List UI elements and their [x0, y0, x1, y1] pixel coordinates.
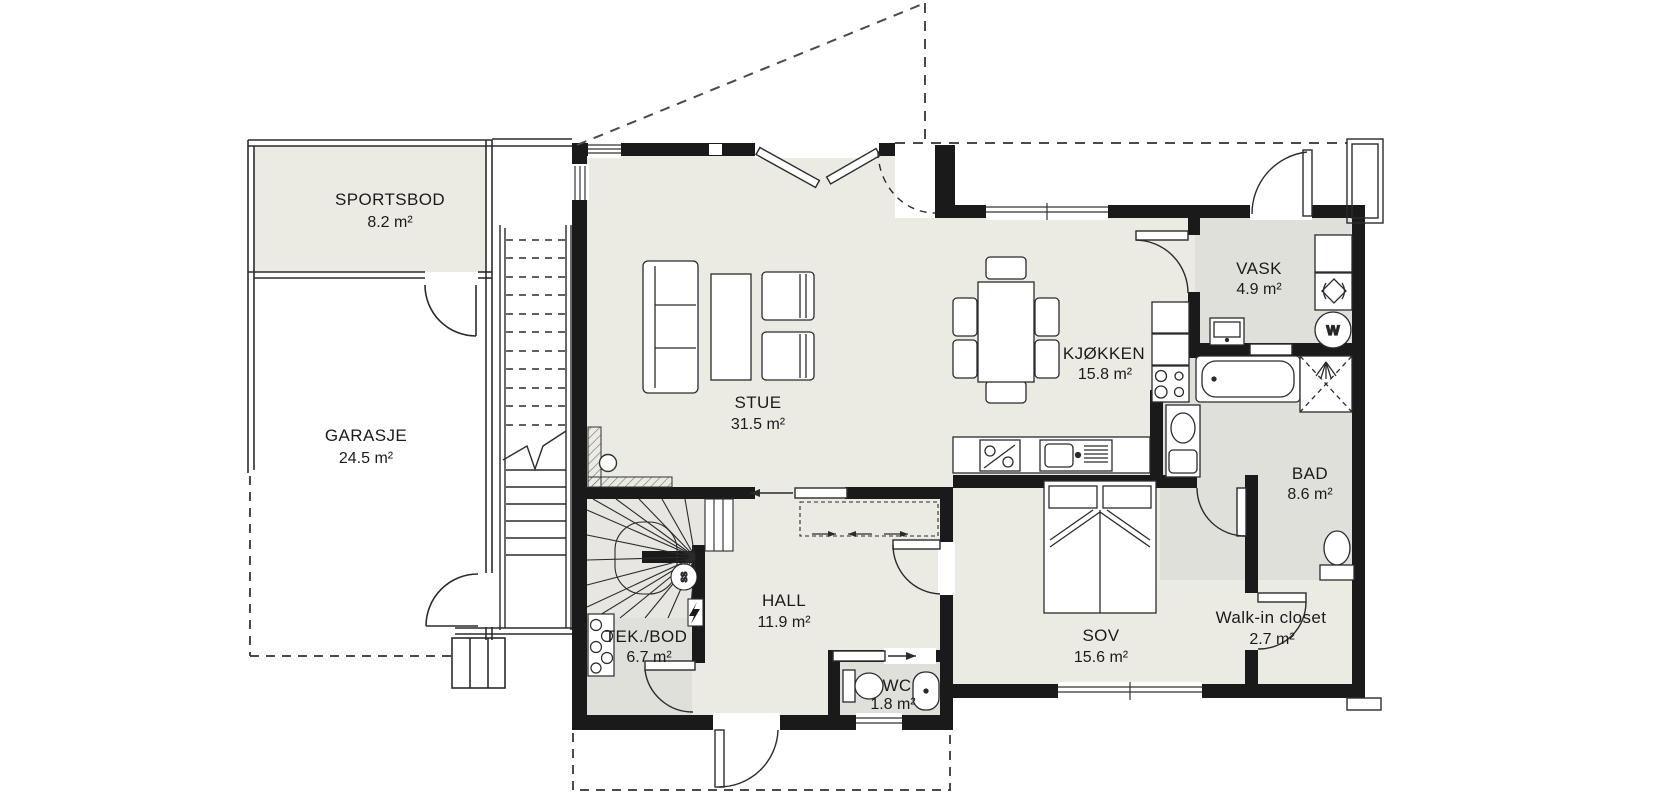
vask-bad-sliding-door	[1250, 344, 1292, 355]
armchair-icon	[762, 272, 814, 320]
kitchen-sink-icon	[1040, 440, 1112, 471]
svg-text:VASK: VASK	[1236, 259, 1282, 278]
svg-text:Walk-in closet: Walk-in closet	[1216, 608, 1327, 627]
counter-icon	[1315, 235, 1352, 272]
svg-text:2.7 m²: 2.7 m²	[1249, 631, 1295, 648]
tall-cabinets-icon	[1152, 302, 1189, 365]
svg-text:BAD: BAD	[1292, 464, 1328, 483]
garage-side-door	[426, 574, 478, 626]
svg-text:15.8 m²: 15.8 m²	[1078, 366, 1133, 383]
bathtub-icon	[1196, 356, 1300, 402]
double-bed-icon	[1044, 481, 1156, 613]
svg-text:KJØKKEN: KJØKKEN	[1063, 344, 1145, 363]
stair-break-line	[503, 431, 566, 469]
chair-icon	[986, 257, 1026, 279]
floor-plan-drawing: SS	[0, 0, 1670, 800]
svg-text:HALL: HALL	[762, 591, 806, 610]
svg-text:8.6 m²: 8.6 m²	[1287, 486, 1333, 503]
corner-step	[1347, 698, 1381, 710]
svg-text:SOV: SOV	[1082, 626, 1119, 645]
chair-icon	[1035, 298, 1059, 336]
outdoor-stair	[500, 225, 571, 630]
chair-icon	[1035, 340, 1059, 378]
svg-text:SPORTSBOD: SPORTSBOD	[335, 190, 445, 209]
armchair-icon	[762, 332, 814, 380]
cooktop-icon	[1152, 366, 1189, 402]
electrical-panel-icon	[688, 599, 703, 626]
chair-icon	[953, 298, 977, 336]
washer-label: W	[1326, 322, 1340, 338]
porch-outline-dashed	[573, 733, 950, 790]
stove-pipe-icon	[600, 455, 617, 472]
garage-dashed-outline	[250, 476, 453, 656]
laundry-sink-icon	[1210, 318, 1244, 345]
stair-spindle-label: SS	[680, 571, 689, 582]
chair-icon	[986, 381, 1026, 403]
chair-icon	[953, 340, 977, 378]
dining-table-icon	[978, 282, 1034, 382]
stair-spindle-marker: SS	[671, 564, 697, 590]
svg-text:11.9 m²: 11.9 m²	[757, 614, 811, 631]
svg-text:31.5 m²: 31.5 m²	[731, 416, 786, 433]
sofa-icon	[643, 261, 698, 393]
svg-text:6.7 m²: 6.7 m²	[626, 649, 672, 666]
svg-text:GARASJE: GARASJE	[325, 426, 407, 445]
vanity-sink-icon	[1166, 405, 1200, 477]
dishwasher-icon	[980, 440, 1020, 471]
svg-text:4.9 m²: 4.9 m²	[1236, 281, 1282, 298]
svg-text:15.6 m²: 15.6 m²	[1074, 649, 1129, 666]
coffee-table-icon	[711, 274, 751, 380]
dryer-icon	[1315, 273, 1352, 310]
floor-plan-page: SS	[0, 0, 1670, 800]
shower-icon	[1300, 356, 1352, 412]
exterior-steps	[452, 638, 505, 688]
wc-sink-icon	[913, 672, 939, 710]
svg-text:STUE: STUE	[735, 393, 782, 412]
svg-text:1.8 m²: 1.8 m²	[870, 696, 916, 713]
stair-upper-treads-dashed	[506, 240, 566, 425]
svg-text:TEK./BOD: TEK./BOD	[605, 627, 688, 646]
entrance-door	[715, 730, 778, 787]
label-garasje: GARASJE 24.5 m²	[325, 426, 407, 467]
washing-machine-icon: W	[1315, 312, 1351, 348]
sportsbod-floor	[254, 146, 486, 272]
sportsbod-door	[425, 285, 476, 336]
svg-text:8.2 m²: 8.2 m²	[367, 214, 413, 231]
svg-text:WC: WC	[882, 676, 911, 695]
svg-text:24.5 m²: 24.5 m²	[339, 450, 394, 467]
roof-outline-dashed	[577, 3, 1347, 145]
